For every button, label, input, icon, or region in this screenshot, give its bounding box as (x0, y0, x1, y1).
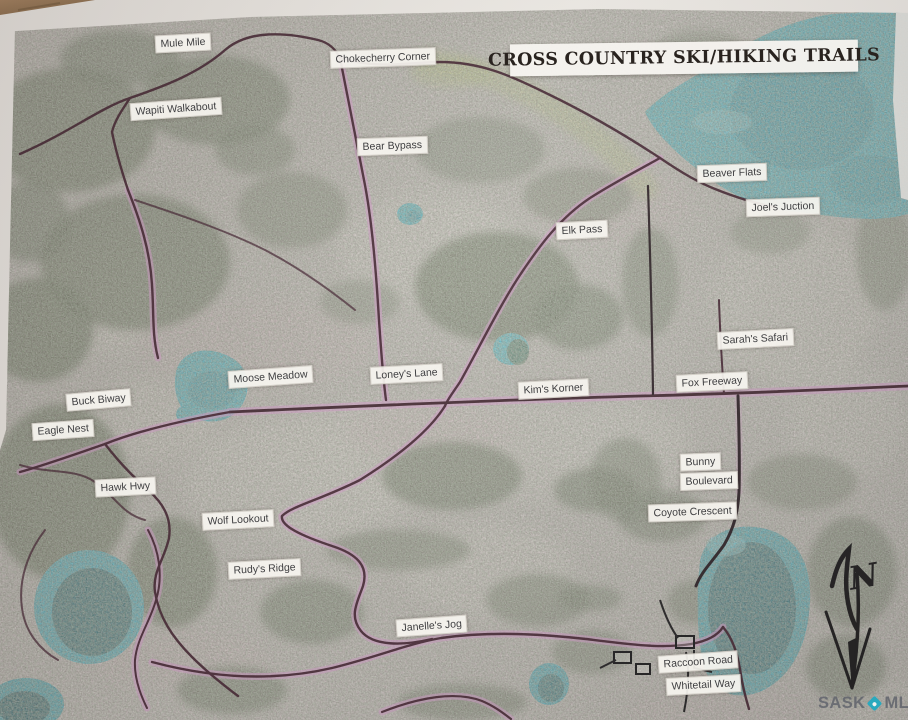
map-title: CROSS COUNTRY SKI/HIKING TRAILS (510, 40, 858, 77)
trail-label-rudys-ridge: Rudy's Ridge (228, 558, 302, 579)
trail-labels: Mule MileChokecherry CornerWapiti Walkab… (0, 0, 908, 720)
trail-label-fox-freeway: Fox Freeway (676, 371, 749, 392)
mls-diamond-icon (867, 696, 883, 712)
watermark-mls: MLS (884, 694, 908, 713)
trail-label-kims-korner: Kim's Korner (518, 378, 590, 399)
trail-label-janelles-jog: Janelle's Jog (395, 615, 467, 638)
trail-label-loneys-lane: Loney's Lane (370, 363, 444, 384)
trail-label-raccoon-road: Raccoon Road (657, 650, 739, 673)
watermark-sask: SASK (818, 694, 865, 713)
trail-map-photo: N Mule MileChokecherry CornerWapiti Walk… (0, 0, 908, 720)
trail-label-bear-bypass: Bear Bypass (357, 136, 428, 156)
trail-label-sarahs-safari: Sarah's Safari (717, 328, 794, 350)
trail-label-bunny: Bunny (680, 452, 721, 471)
trail-label-boulevard: Boulevard (680, 471, 739, 491)
trail-label-wolf-lookout: Wolf Lookout (202, 509, 275, 530)
trail-label-beaver-flats: Beaver Flats (697, 163, 768, 183)
trail-label-chokecherry-corner: Chokecherry Corner (330, 47, 436, 68)
sask-mls-watermark: SASK MLS ® (818, 694, 908, 713)
trail-label-elk-pass: Elk Pass (556, 220, 609, 240)
trail-label-wapiti-walkabout: Wapiti Walkabout (129, 97, 222, 121)
trail-label-whitetail-way: Whitetail Way (666, 674, 742, 695)
trail-label-coyote-crescent: Coyote Crescent (648, 501, 738, 522)
trail-label-hawk-hwy: Hawk Hwy (95, 476, 156, 497)
trail-label-buck-biway: Buck Biway (65, 388, 132, 411)
trail-label-joels-juction: Joel's Juction (746, 197, 820, 217)
trail-label-eagle-nest: Eagle Nest (31, 419, 94, 441)
trail-label-mule-mile: Mule Mile (155, 33, 212, 53)
trail-label-moose-meadow: Moose Meadow (227, 365, 313, 388)
